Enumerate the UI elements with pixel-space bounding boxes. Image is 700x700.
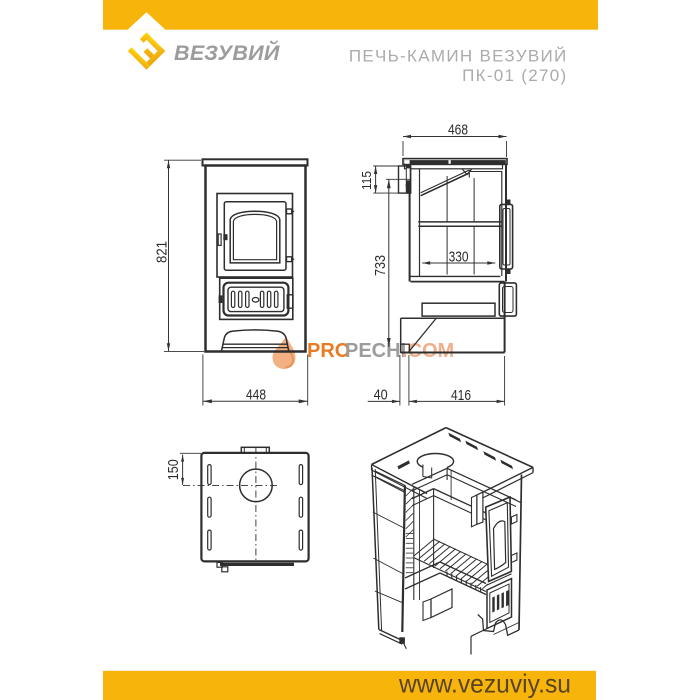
- svg-text:ВЕЗУВИЙ: ВЕЗУВИЙ: [174, 39, 280, 65]
- svg-text:468: 468: [448, 121, 468, 138]
- svg-text:PRO: PRO: [307, 340, 350, 362]
- svg-text:PECHI: PECHI: [345, 340, 406, 362]
- svg-text:www.vezuviy.su: www.vezuviy.su: [398, 669, 571, 699]
- svg-text:ПЕЧЬ-КАМИН ВЕЗУВИЙ: ПЕЧЬ-КАМИН ВЕЗУВИЙ: [349, 47, 568, 66]
- svg-text:ПК-01 (270): ПК-01 (270): [462, 66, 567, 85]
- svg-text:448: 448: [246, 386, 266, 403]
- svg-text:821: 821: [154, 241, 171, 263]
- svg-text:330: 330: [449, 249, 469, 266]
- svg-text:40: 40: [374, 386, 388, 403]
- svg-text:150: 150: [165, 459, 182, 480]
- svg-text:416: 416: [451, 387, 471, 404]
- svg-text:115: 115: [359, 171, 374, 190]
- svg-text:733: 733: [372, 255, 389, 276]
